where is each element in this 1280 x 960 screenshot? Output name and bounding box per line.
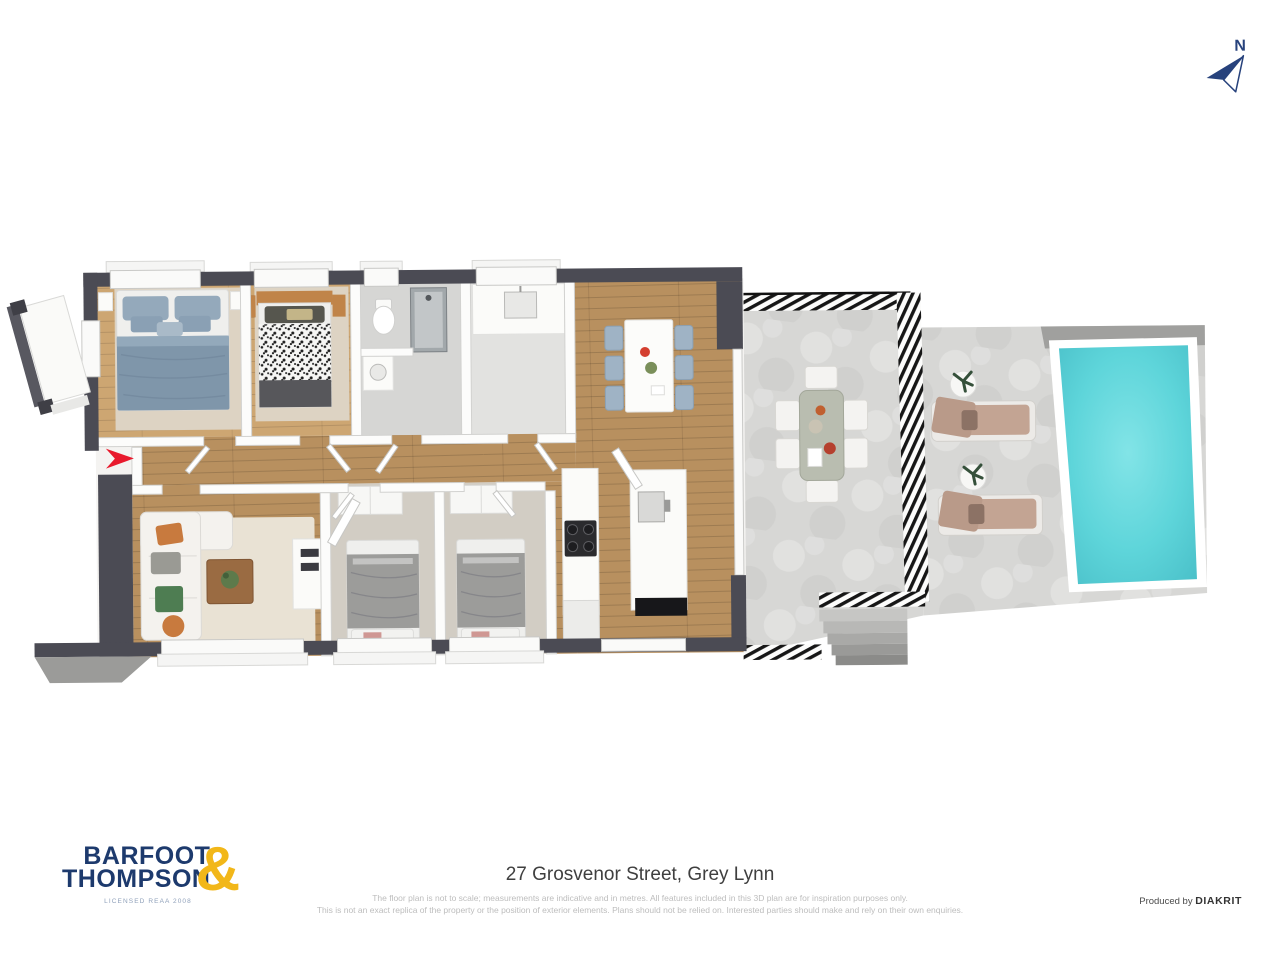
floorplan-page: N BARFOOT THOMPSON & LICENSED REAA 2008 … [0, 0, 1280, 960]
side-table-2 [960, 464, 986, 490]
outdoor-table [799, 390, 844, 480]
swimming-pool [1059, 345, 1197, 584]
laundry-sink [504, 292, 536, 318]
laundry [472, 284, 564, 335]
kitchen-island [630, 470, 687, 616]
sliding-door-glass [733, 349, 744, 575]
right-wall-upper [716, 281, 743, 349]
dining-chair [675, 386, 693, 410]
house [5, 256, 746, 683]
island-sink [638, 492, 664, 522]
pouf [162, 615, 184, 637]
pool-patio-area [921, 325, 1208, 615]
dining-chair [675, 326, 693, 350]
dining-area [605, 320, 694, 413]
greenery [645, 362, 657, 374]
window [110, 270, 200, 289]
red-pot [824, 442, 836, 454]
flower-decor [815, 405, 825, 415]
outdoor-chair [776, 439, 800, 469]
credit-prefix: Produced by [1139, 896, 1195, 907]
dining-chair [675, 356, 693, 380]
bed-4 [457, 539, 526, 648]
dining-chair [605, 326, 623, 350]
sun-lounger-2 [937, 489, 1042, 535]
cushion-grey [151, 552, 181, 574]
dining-chair [605, 386, 623, 410]
deck-railing-top [740, 293, 910, 311]
coffee-table [207, 559, 253, 603]
outdoor-chair [844, 438, 868, 468]
shower [410, 288, 447, 352]
vanity [363, 354, 393, 390]
property-address: 27 Grosvenor Street, Grey Lynn [0, 864, 1280, 886]
cushion-orange [155, 522, 184, 546]
nightstand [98, 293, 112, 311]
compass-n-label: N [1234, 38, 1246, 55]
deck-railing-bottom-right [819, 592, 925, 608]
window [82, 321, 100, 377]
faucet [664, 500, 670, 512]
disclaimer-line-2: This is not an exact replica of the prop… [0, 905, 1280, 915]
deck-area [740, 292, 929, 666]
island-base [635, 598, 687, 616]
producer-credit: Produced by DIAKRIT [1139, 895, 1242, 907]
kitchen-cabinet [563, 600, 599, 642]
floorplan-3d-render: N [0, 0, 1280, 960]
right-wall-lower [731, 575, 747, 639]
dish [651, 386, 664, 395]
window [254, 269, 328, 288]
outdoor-chair [805, 366, 837, 388]
disclaimer-line-1: The floor plan is not to scale; measurem… [0, 893, 1280, 903]
sliding-door-glass [601, 639, 685, 652]
double-bed [116, 290, 229, 411]
bed-3 [347, 540, 420, 649]
window [364, 268, 398, 286]
single-bed [256, 291, 333, 408]
dried-bouquet [809, 419, 823, 433]
left-wall-lower [98, 474, 134, 656]
credit-brand: DIAKRIT [1195, 895, 1242, 907]
cooktop [564, 520, 596, 556]
master-bedroom [98, 289, 245, 410]
table-plant [221, 571, 239, 589]
outdoor-chair [775, 401, 799, 431]
side-table-1 [950, 371, 976, 397]
toilet [373, 299, 395, 334]
dining-chair [605, 356, 623, 380]
throw-green [155, 586, 183, 612]
side-cube [332, 295, 345, 317]
outdoor-chair [806, 480, 838, 502]
table-book [808, 448, 822, 466]
sun-lounger-1 [931, 395, 1036, 441]
deck-railing-bottom-left [744, 644, 822, 660]
flowers [640, 347, 650, 357]
outdoor-chair [843, 400, 867, 430]
window [476, 267, 556, 286]
